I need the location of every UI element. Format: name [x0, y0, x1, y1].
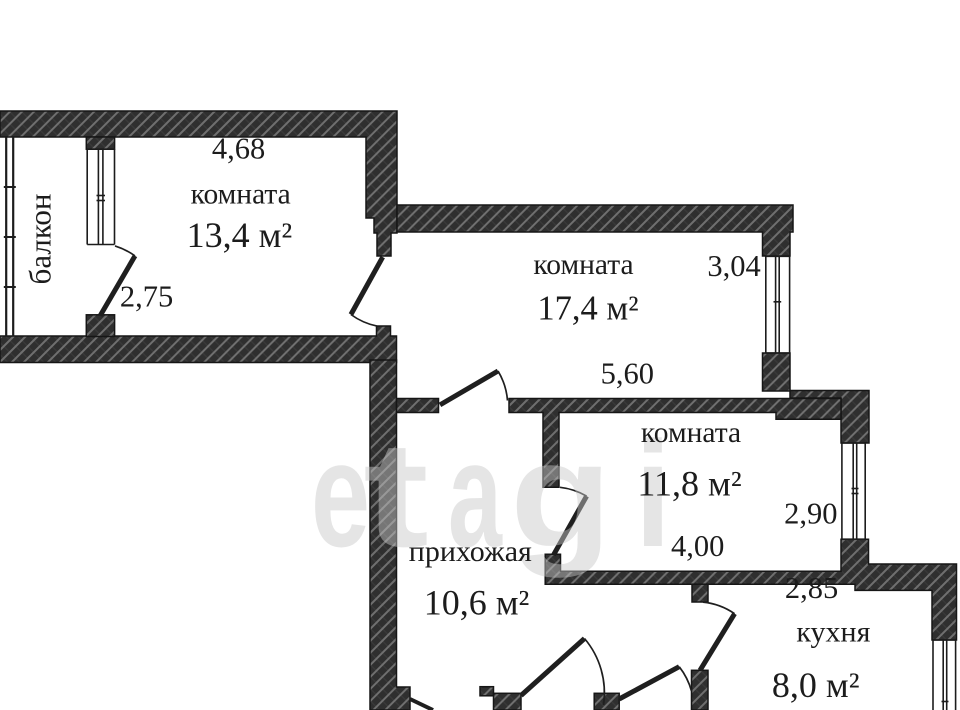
svg-text:комната: комната — [533, 249, 633, 281]
svg-text:13,4 м²: 13,4 м² — [187, 215, 293, 255]
svg-text:2,75: 2,75 — [120, 280, 173, 314]
svg-text:5,60: 5,60 — [601, 357, 654, 391]
svg-text:3,04: 3,04 — [707, 249, 760, 283]
svg-text:2,90: 2,90 — [784, 497, 837, 531]
svg-text:8,0 м²: 8,0 м² — [772, 665, 860, 705]
svg-text:e: e — [311, 410, 370, 578]
svg-text:балкон: балкон — [23, 194, 58, 285]
svg-text:4,68: 4,68 — [212, 132, 265, 166]
svg-text:4,00: 4,00 — [671, 529, 724, 563]
svg-text:10,6 м²: 10,6 м² — [424, 583, 530, 623]
svg-text:комната: комната — [641, 417, 741, 449]
svg-text:2,85: 2,85 — [785, 571, 838, 605]
svg-text:комната: комната — [191, 179, 291, 211]
svg-text:11,8 м²: 11,8 м² — [637, 464, 741, 504]
svg-text:кухня: кухня — [796, 616, 870, 649]
svg-text:прихожая: прихожая — [409, 535, 532, 568]
svg-text:17,4 м²: 17,4 м² — [537, 290, 638, 328]
